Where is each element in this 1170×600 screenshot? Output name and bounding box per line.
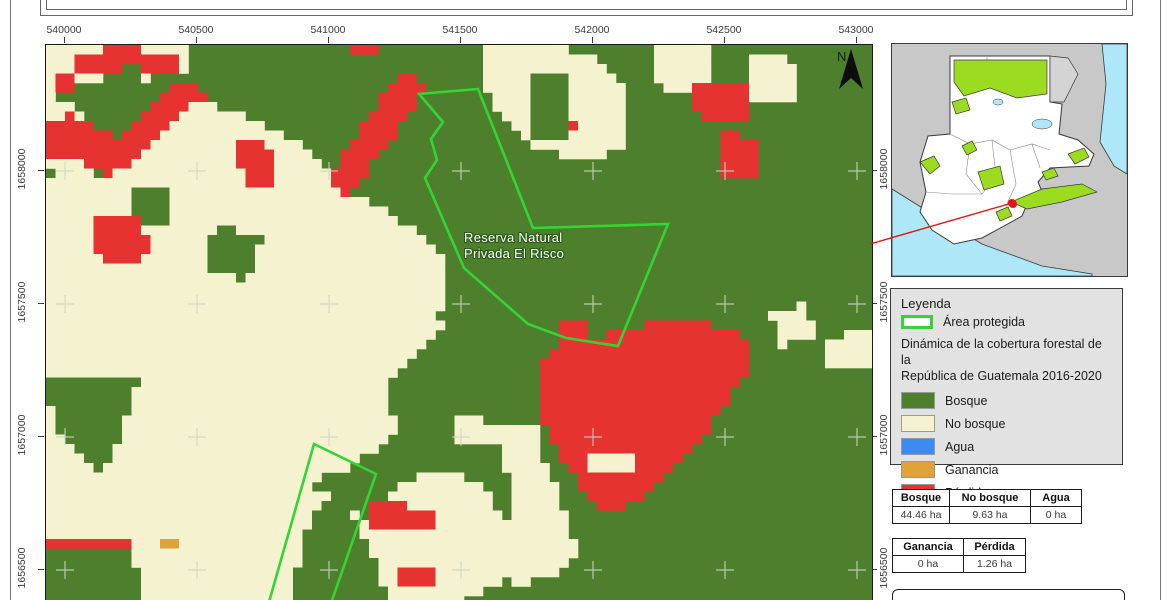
legend-item-bosque: Bosque <box>901 392 1112 409</box>
legend-item-no_bosque: No bosque <box>901 415 1112 432</box>
y-axis-tick-left <box>38 303 44 304</box>
reserve-label: Reserva NaturalPrivada El Risco <box>464 230 564 262</box>
stats-table-2: GananciaPérdida0 ha1.26 ha <box>892 538 1026 573</box>
legend-item-label: Ganancia <box>945 463 999 477</box>
y-axis-label-left: 1657500 <box>16 267 28 337</box>
table-header: Ganancia <box>893 539 964 556</box>
x-axis-label: 542000 <box>557 24 627 36</box>
x-axis-label: 540500 <box>161 24 231 36</box>
x-axis-tick <box>460 37 461 43</box>
guatemala-inset-svg <box>892 44 1127 276</box>
table-value: 9.63 ha <box>950 507 1031 524</box>
y-axis-label-right: 1656500 <box>878 533 890 600</box>
title-frame-inner <box>46 0 1127 10</box>
legend-description: Dinámica de la cobertura forestal de la … <box>901 336 1112 384</box>
table-header: Bosque <box>893 490 950 507</box>
table-header: Pérdida <box>964 539 1026 556</box>
x-axis-tick <box>196 37 197 43</box>
page-border-left <box>10 0 11 600</box>
bosque-swatch <box>901 392 935 409</box>
y-axis-tick-left <box>38 170 44 171</box>
legend: Leyenda Área protegida Dinámica de la co… <box>890 288 1123 465</box>
legend-item-agua: Agua <box>901 438 1112 455</box>
north-arrow-icon <box>837 49 865 91</box>
x-axis-tick <box>592 37 593 43</box>
legend-item-label: Bosque <box>945 394 987 408</box>
agua-swatch <box>901 438 935 455</box>
protected-area-label: Área protegida <box>943 315 1025 329</box>
x-axis-label: 540000 <box>29 24 99 36</box>
legend-title: Leyenda <box>901 296 1112 311</box>
page-border-right <box>1160 0 1161 600</box>
north-arrow: N <box>837 49 846 64</box>
ganancia-swatch <box>901 461 935 478</box>
bottom-panel-partial <box>892 589 1125 600</box>
x-axis-label: 541500 <box>425 24 495 36</box>
y-axis-label-right: 1657000 <box>878 400 890 470</box>
table-value: 44.46 ha <box>893 507 950 524</box>
y-axis-label-left: 1658000 <box>16 134 28 204</box>
legend-item-ganancia: Ganancia <box>901 461 1112 478</box>
table-value: 0 ha <box>1031 507 1082 524</box>
y-axis-label-left: 1657000 <box>16 400 28 470</box>
legend-item-list: BosqueNo bosqueAguaGananciaPérdida <box>901 392 1112 501</box>
y-axis-tick-left <box>38 569 44 570</box>
guatemala-inset-map <box>891 43 1128 277</box>
forest-cover-raster <box>46 45 872 600</box>
y-axis-tick-left <box>38 436 44 437</box>
legend-item-label: No bosque <box>945 417 1005 431</box>
no_bosque-swatch <box>901 415 935 432</box>
table-header: Agua <box>1031 490 1082 507</box>
x-axis-tick <box>328 37 329 43</box>
x-axis-label: 541000 <box>293 24 363 36</box>
table-header: No bosque <box>950 490 1031 507</box>
legend-protected-item: Área protegida <box>901 315 1112 329</box>
x-axis-tick <box>856 37 857 43</box>
main-map: Reserva NaturalPrivada El Risco N <box>45 44 873 600</box>
y-axis-label-right: 1658000 <box>878 134 890 204</box>
y-axis-label-right: 1657500 <box>878 267 890 337</box>
protected-area-swatch <box>901 315 933 329</box>
legend-item-label: Agua <box>945 440 974 454</box>
x-axis-label: 543000 <box>821 24 891 36</box>
table-value: 1.26 ha <box>964 556 1026 573</box>
table-value: 0 ha <box>893 556 964 573</box>
map-layout-page: 5400005405005410005415005420005425005430… <box>0 0 1170 600</box>
y-axis-label-left: 1656500 <box>16 533 28 600</box>
stats-table-1: BosqueNo bosqueAgua44.46 ha9.63 ha0 ha <box>892 489 1082 524</box>
x-axis-label: 542500 <box>689 24 759 36</box>
x-axis-tick <box>64 37 65 43</box>
x-axis-tick <box>724 37 725 43</box>
